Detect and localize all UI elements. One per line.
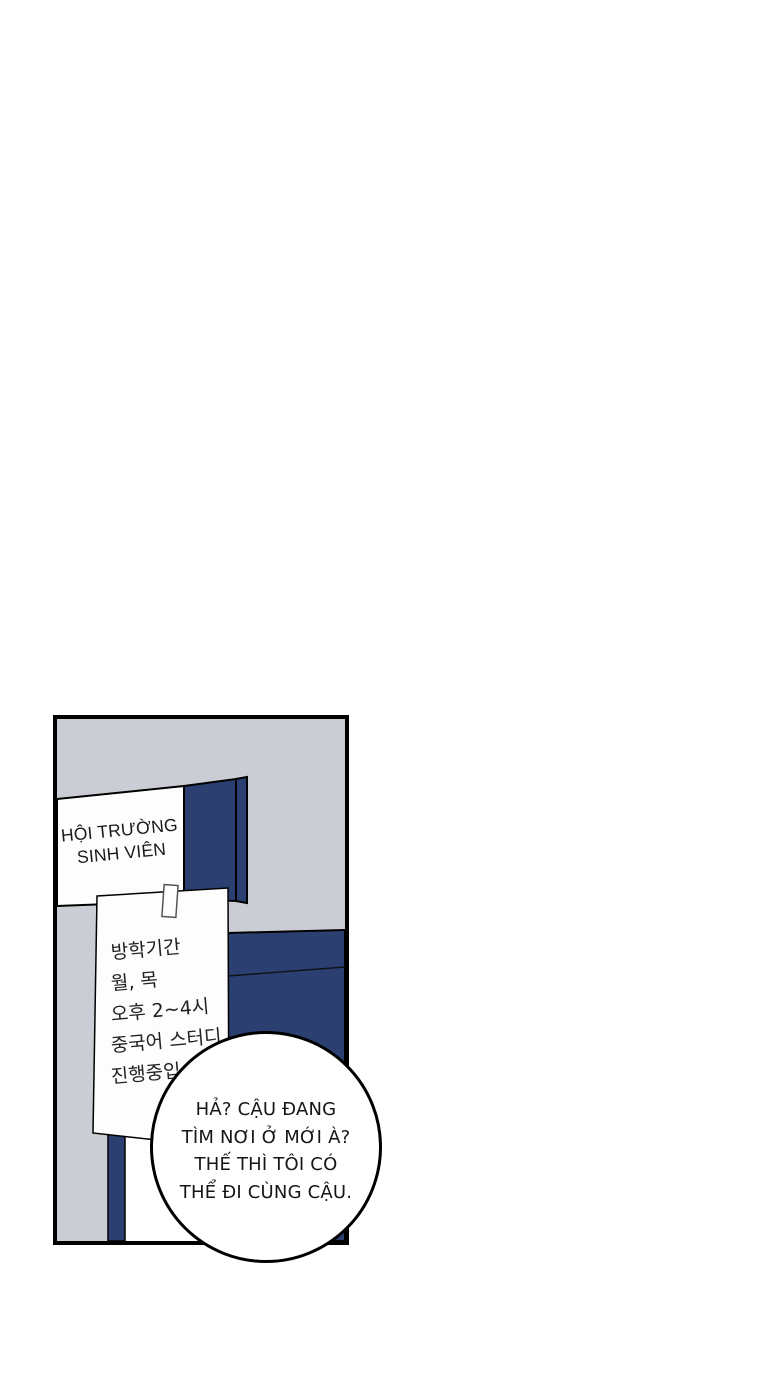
speech-line: HẢ? CẬU ĐANG [196, 1096, 337, 1124]
sign-side-edge [236, 777, 247, 903]
speech-line: THẾ THÌ TÔI CÓ [195, 1151, 338, 1179]
speech-bubble: HẢ? CẬU ĐANG TÌM NƠI Ở MỚI À? THẾ THÌ TÔ… [150, 1031, 382, 1263]
paper-pin-tab [162, 885, 178, 918]
comic-page: { "page": { "background_color": "#ffffff… [0, 0, 760, 1398]
speech-line: TÌM NƠI Ở MỚI À? [182, 1124, 351, 1152]
wall-edge-strip [108, 1133, 125, 1241]
sign-side-front [184, 779, 236, 901]
speech-line: THỂ ĐI CÙNG CẬU. [180, 1179, 352, 1207]
